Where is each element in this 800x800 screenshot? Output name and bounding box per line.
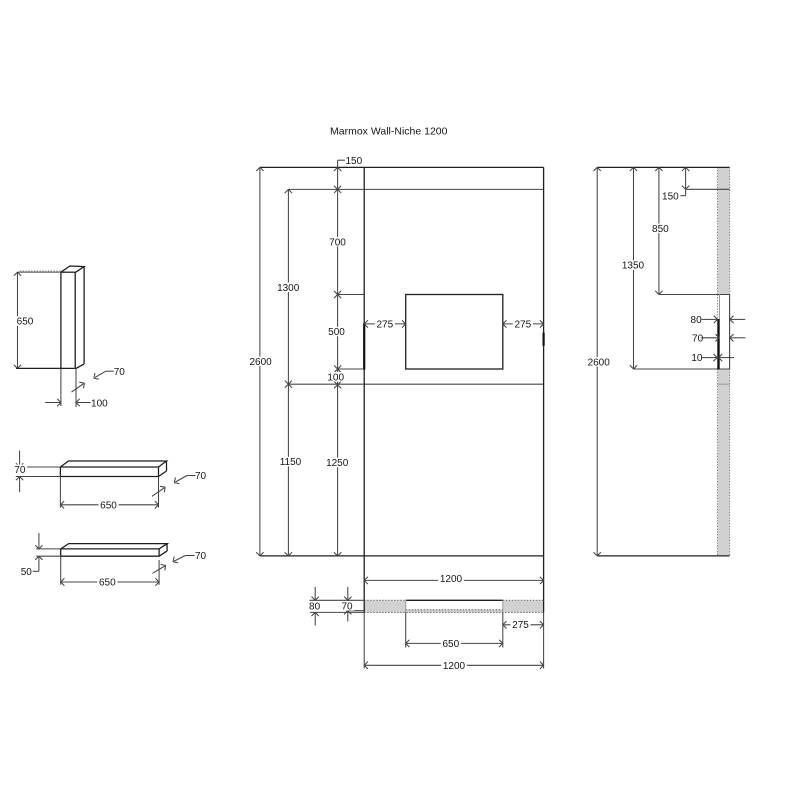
svg-text:700: 700: [329, 237, 346, 248]
svg-text:2600: 2600: [588, 358, 611, 369]
svg-text:50: 50: [21, 567, 33, 578]
svg-text:1300: 1300: [277, 283, 300, 294]
svg-text:100: 100: [91, 399, 108, 410]
svg-text:1250: 1250: [326, 458, 349, 469]
svg-text:650: 650: [442, 639, 459, 650]
svg-text:70: 70: [114, 367, 126, 378]
svg-text:650: 650: [100, 501, 117, 512]
svg-text:10: 10: [691, 353, 703, 364]
svg-text:70: 70: [14, 465, 26, 476]
svg-text:275: 275: [376, 320, 393, 331]
svg-text:70: 70: [195, 471, 207, 482]
svg-text:70: 70: [692, 333, 704, 344]
svg-text:500: 500: [328, 327, 345, 338]
svg-text:Marmox Wall-Niche 1200: Marmox Wall-Niche 1200: [330, 126, 448, 138]
svg-text:850: 850: [652, 224, 669, 235]
svg-text:1350: 1350: [622, 261, 645, 272]
svg-text:2600: 2600: [249, 357, 272, 368]
svg-text:650: 650: [99, 578, 116, 589]
svg-text:150: 150: [345, 156, 362, 167]
svg-text:1150: 1150: [280, 457, 302, 468]
svg-text:70: 70: [341, 601, 353, 612]
svg-text:150: 150: [662, 191, 679, 202]
svg-text:1200: 1200: [443, 661, 466, 672]
svg-text:80: 80: [691, 315, 703, 326]
svg-text:1200: 1200: [440, 574, 463, 585]
svg-text:650: 650: [17, 317, 34, 328]
svg-text:275: 275: [512, 620, 529, 631]
svg-text:80: 80: [309, 601, 321, 612]
svg-text:100: 100: [327, 372, 344, 383]
svg-text:70: 70: [195, 551, 207, 562]
svg-text:275: 275: [514, 320, 531, 331]
